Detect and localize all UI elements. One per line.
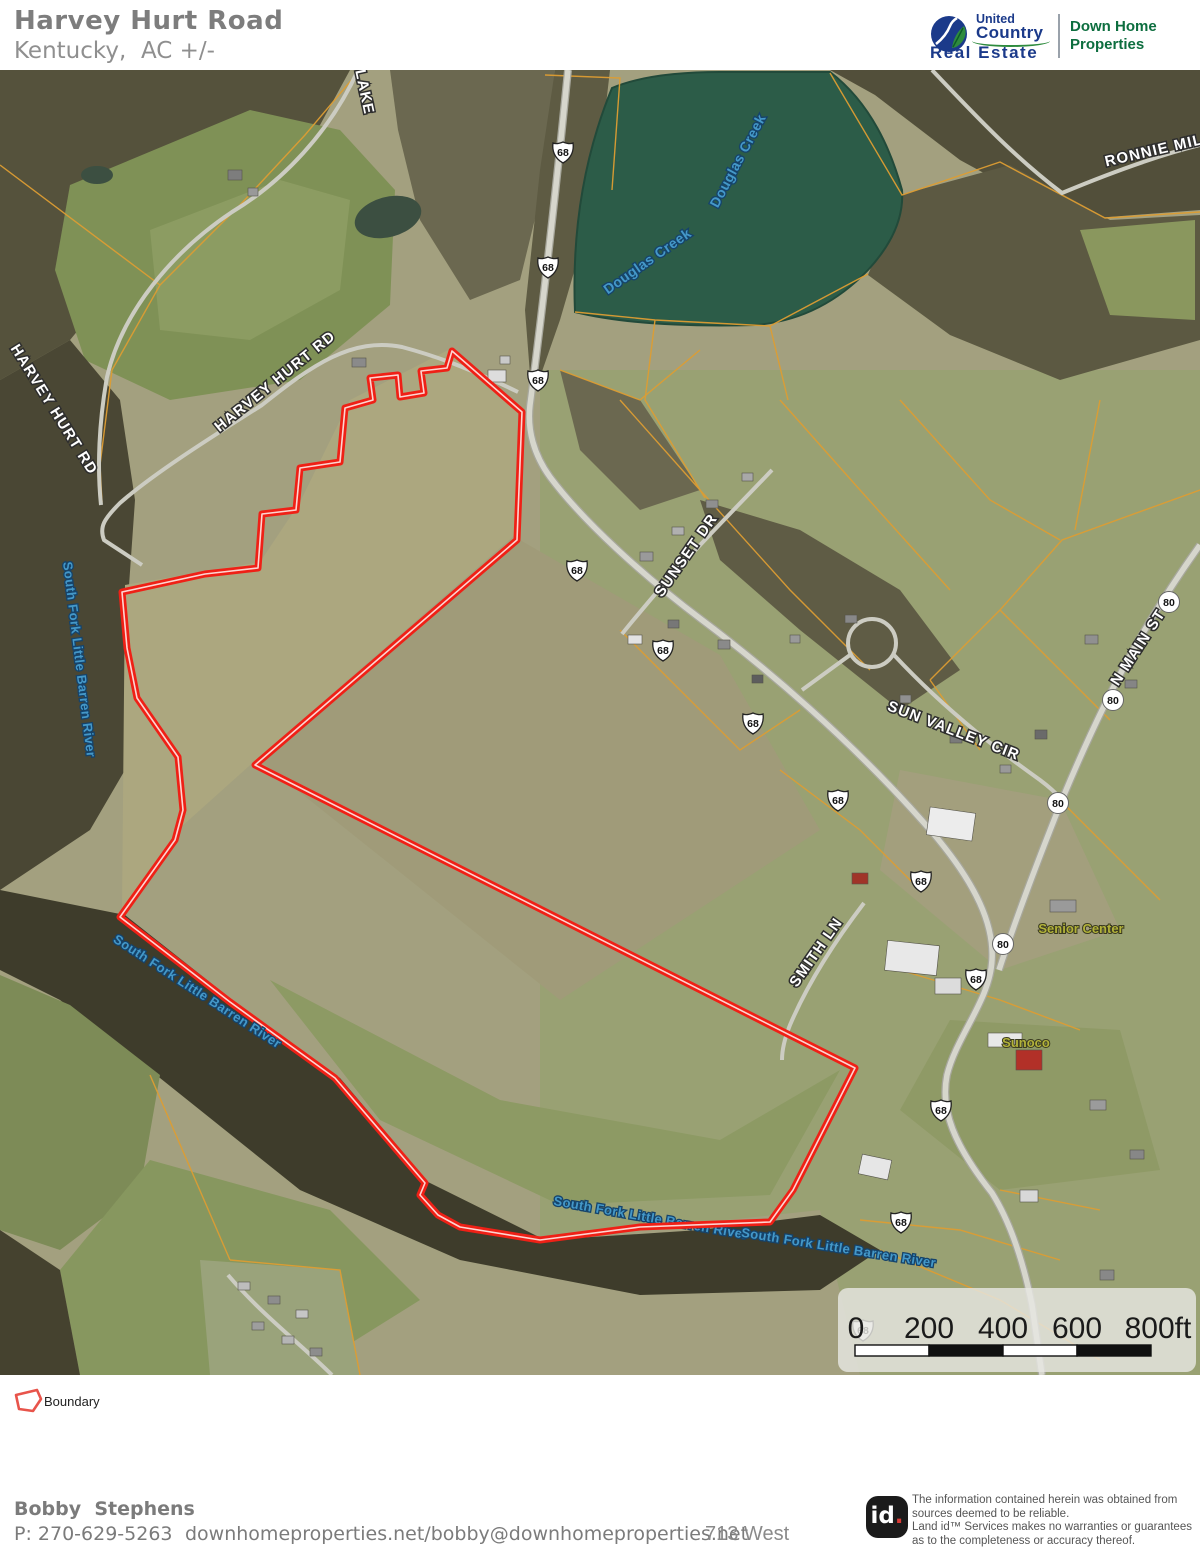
page-subtitle: Kentucky, AC +/- xyxy=(14,38,215,64)
route-80-badge: 80 xyxy=(993,934,1014,955)
svg-text:68: 68 xyxy=(542,262,554,274)
scale-tick-0: 0 xyxy=(848,1312,865,1345)
header: Harvey Hurt Road Kentucky, AC +/- United… xyxy=(0,0,1200,70)
scale-tick-200: 200 xyxy=(904,1312,954,1345)
land-id-logo-dot: . xyxy=(895,1503,904,1529)
office-name-line1: Down Home xyxy=(1070,18,1157,35)
route-80-badge: 80 xyxy=(1159,592,1180,613)
scale-bar: 0 200 400 600 800ft xyxy=(838,1288,1196,1372)
svg-text:68: 68 xyxy=(935,1105,947,1117)
land-id-logo-text: id xyxy=(870,1503,894,1529)
office-name-line2: Properties xyxy=(1070,36,1144,53)
page: Harvey Hurt Road Kentucky, AC +/- United… xyxy=(0,0,1200,1552)
agent-name: Bobby Stephens xyxy=(14,1498,195,1520)
route-80-badge: 80 xyxy=(1048,793,1069,814)
svg-text:68: 68 xyxy=(832,795,844,807)
disclaimer-line: as to the completeness or accuracy there… xyxy=(912,1535,1198,1549)
disclaimer-line: The information contained herein was obt… xyxy=(912,1494,1198,1508)
disclaimer-line: Land id™ Services makes no warranties or… xyxy=(912,1521,1198,1535)
svg-text:68: 68 xyxy=(970,974,982,986)
svg-text:80: 80 xyxy=(1163,597,1175,609)
scale-tick-600: 600 xyxy=(1052,1312,1102,1345)
svg-text:68: 68 xyxy=(657,645,669,657)
footer: Bobby Stephens P: 270-629-5263 downhomep… xyxy=(0,1470,1200,1552)
scale-bar-segments xyxy=(855,1345,1151,1356)
aerial-map: South Fork Little Barren River Douglas C… xyxy=(0,70,1200,1375)
svg-text:68: 68 xyxy=(571,565,583,577)
scale-tick-800ft: 800ft xyxy=(1125,1312,1192,1345)
svg-text:68: 68 xyxy=(557,147,569,159)
svg-text:80: 80 xyxy=(997,939,1009,951)
svg-text:68: 68 xyxy=(747,718,759,730)
boundary-legend-icon xyxy=(12,1387,44,1415)
svg-text:80: 80 xyxy=(1107,695,1119,707)
brand-real-estate: Real Estate xyxy=(930,43,1038,63)
route-80-badge: 80 xyxy=(1103,690,1124,711)
senior-center-label: Senior Center xyxy=(1038,921,1123,936)
brand-divider xyxy=(1058,14,1060,58)
brand-logo: United Country Real Estate Down Home Pro… xyxy=(930,6,1190,66)
legend: Boundary xyxy=(0,1381,1200,1425)
scale-tick-400: 400 xyxy=(978,1312,1028,1345)
agent-website-email-link[interactable]: downhomeproperties.net/bobby@downhomepro… xyxy=(185,1523,748,1545)
boundary-legend-label: Boundary xyxy=(44,1394,100,1409)
svg-text:68: 68 xyxy=(532,375,544,387)
svg-text:68: 68 xyxy=(895,1217,907,1229)
office-address: 713 West xyxy=(705,1523,789,1546)
svg-text:68: 68 xyxy=(915,876,927,888)
svg-text:80: 80 xyxy=(1052,798,1064,810)
map-canvas: South Fork Little Barren River Douglas C… xyxy=(0,70,1200,1375)
disclaimer-text: The information contained herein was obt… xyxy=(912,1494,1198,1548)
disclaimer-line: sources deemed to be reliable. xyxy=(912,1508,1198,1522)
sunoco-label: Sunoco xyxy=(1002,1035,1050,1050)
agent-phone: P: 270-629-5263 xyxy=(14,1523,173,1545)
page-title: Harvey Hurt Road xyxy=(14,6,283,36)
land-id-logo: id. xyxy=(866,1496,908,1538)
